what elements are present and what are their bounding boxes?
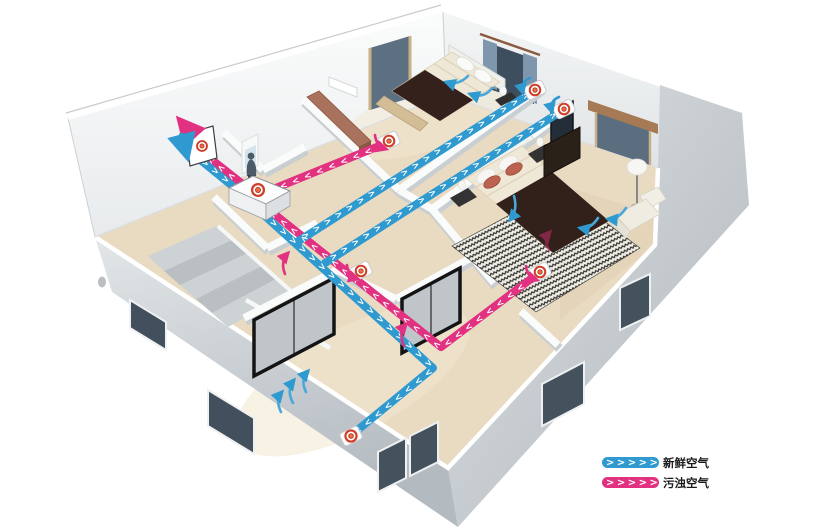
- fresh-air-band-chevrons: >>>>>: [606, 458, 660, 469]
- legend-item-exhaust-air: >>>>> 污浊空气: [602, 476, 709, 490]
- house-illustration: >>>>>>>>>>>>>>>>>>>>>>>>>>>> >>>>>>>>>>>…: [0, 0, 824, 529]
- legend-item-fresh-air: >>>>> 新鲜空气: [602, 456, 709, 470]
- ventilation-diagram-canvas: >>>>>>>>>>>>>>>>>>>>>>>>>>>> >>>>>>>>>>>…: [0, 0, 824, 529]
- exhaust-air-band-chevrons: >>>>>: [606, 478, 660, 489]
- vent-target-icon: [197, 141, 207, 151]
- wall-porthole: [98, 277, 106, 288]
- legend-label-exhaust-air: 污浊空气: [663, 476, 709, 490]
- legend-label-fresh-air: 新鲜空气: [663, 456, 709, 470]
- legend: >>>>> 新鲜空气 >>>>> 污浊空气: [602, 456, 709, 490]
- unit-target-icon: [252, 184, 264, 196]
